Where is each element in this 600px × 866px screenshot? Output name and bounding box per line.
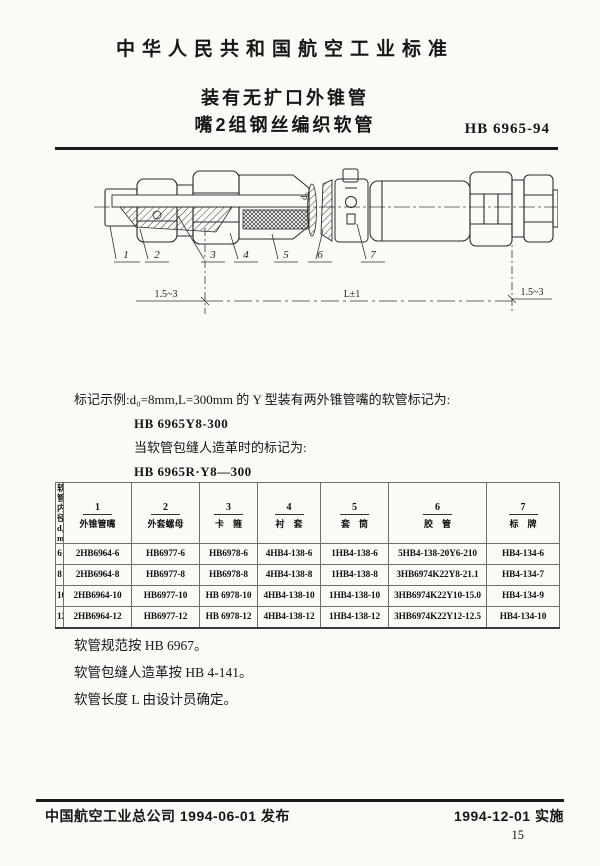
part-number-cell: HB4-134-7	[487, 565, 560, 586]
part-number-cell: 1HB4-138-6	[321, 544, 389, 565]
left-fitting-section-details	[112, 184, 317, 236]
marking-code-2: HB 6965R·Y8—300	[134, 460, 450, 484]
part-number-cell: 2HB6964-8	[64, 565, 132, 586]
table-row: 6 2HB6964-6 HB6977-6 HB6978-6 4HB4-138-6…	[56, 544, 560, 565]
part-number-cell: 4HB4-138-10	[258, 586, 321, 607]
notes-block: 软管规范按 HB 6967。 软管包缝人造革按 HB 4-141。 软管长度 L…	[74, 632, 253, 713]
standard-title: 中华人民共和国航空工业标准	[20, 34, 550, 61]
part-number-cell: 1HB4-138-10	[321, 586, 389, 607]
dimension-left-label: 1.5~3	[155, 289, 178, 300]
col-header-diameter: 软管 内径 d₀ mm	[56, 483, 64, 544]
col-header-sleeve: 5 套筒	[321, 483, 389, 544]
hose-assembly-drawing-svg: 1 2 3 4 5 6 7 1.5~3 L±1 1.5~3 d₀	[60, 166, 558, 322]
parts-table-header-row: 软管 内径 d₀ mm 1 外锥管嘴 2 外套螺母 3 卡箍	[56, 483, 560, 544]
part-number-cell: HB4-134-9	[487, 586, 560, 607]
part-number-cell: HB6977-10	[132, 586, 200, 607]
diameter-cell: 12	[56, 607, 64, 629]
right-fitting-outline	[370, 172, 558, 246]
col-header-nut: 2 外套螺母	[132, 483, 200, 544]
part-number-cell: 4HB4-138-12	[258, 607, 321, 629]
part-number-cell: HB 6978-12	[200, 607, 258, 629]
table-row: 10 2HB6964-10 HB6977-10 HB 6978-10 4HB4-…	[56, 586, 560, 607]
part-number-cell: 3HB6974K22Y12-12.5	[389, 607, 487, 629]
footer-implement-text: 1994-12-01 实施	[454, 806, 564, 826]
col-header-tag: 7 标牌	[487, 483, 560, 544]
marking-example-block: 标记示例:d₀=8mm,L=300mm 的 Y 型装有两外锥管嘴的软管标记为: …	[74, 388, 450, 484]
part-number-cell: 4HB4-138-8	[258, 565, 321, 586]
standard-code: HB 6965-94	[465, 121, 550, 138]
part-number-cell: 2HB6964-12	[64, 607, 132, 629]
part-label-7: 7	[370, 249, 376, 261]
part-number-cell: HB 6978-10	[200, 586, 258, 607]
note-hose-length: 软管长度 L 由设计员确定。	[74, 686, 253, 713]
part-number-cell: 1HB4-138-12	[321, 607, 389, 629]
part-label-4: 4	[243, 249, 249, 261]
col-header-nipple: 1 外锥管嘴	[64, 483, 132, 544]
diameter-cell: 6	[56, 544, 64, 565]
hose-break-and-tag-band	[321, 169, 368, 242]
parts-table: 软管 内径 d₀ mm 1 外锥管嘴 2 外套螺母 3 卡箍	[55, 482, 560, 629]
table-row: 8 2HB6964-8 HB6977-8 HB6978-8 4HB4-138-8…	[56, 565, 560, 586]
part-number-cell: HB4-134-10	[487, 607, 560, 629]
table-row: 12 2HB6964-12 HB6977-12 HB 6978-12 4HB4-…	[56, 607, 560, 629]
diameter-cell: 8	[56, 565, 64, 586]
part-number-cell: HB6977-6	[132, 544, 200, 565]
footer-rule	[36, 799, 564, 802]
marking-example-intro: 标记示例:d₀=8mm,L=300mm 的 Y 型装有两外锥管嘴的软管标记为:	[74, 388, 450, 412]
dimension-lines	[136, 228, 552, 314]
hose-assembly-technical-drawing: 1 2 3 4 5 6 7 1.5~3 L±1 1.5~3 d₀	[60, 166, 558, 322]
part-number-cell: 2HB6964-10	[64, 586, 132, 607]
part-label-5: 5	[283, 249, 289, 261]
page-number: 15	[512, 828, 525, 843]
standard-document-page: 中华人民共和国航空工业标准 装有无扩口外锥管 嘴2组钢丝编织软管 HB 6965…	[0, 0, 600, 866]
part-number-cell: HB6977-8	[132, 565, 200, 586]
part-number-cell: 3HB6974K22Y10-15.0	[389, 586, 487, 607]
part-label-1: 1	[123, 249, 129, 261]
part-number-cell: HB6978-8	[200, 565, 258, 586]
marking-leather-intro: 当软管包缝人造革时的标记为:	[134, 436, 450, 460]
part-number-cell: HB6977-12	[132, 607, 200, 629]
part-number-cell: 5HB4-138-20Y6-210	[389, 544, 487, 565]
part-number-cell: 4HB4-138-6	[258, 544, 321, 565]
part-number-cell: 3HB6974K22Y8-21.1	[389, 565, 487, 586]
col-header-bushing: 4 衬套	[258, 483, 321, 544]
part-number-cell: HB6978-6	[200, 544, 258, 565]
col-header-clamp: 3 卡箍	[200, 483, 258, 544]
col-header-hose: 6 胶管	[389, 483, 487, 544]
part-number-labels: 1 2 3 4 5 6 7	[123, 249, 376, 261]
footer-issue-text: 中国航空工业总公司 1994-06-01 发布	[45, 806, 290, 826]
part-number-cell: HB4-134-6	[487, 544, 560, 565]
part-number-cell: 2HB6964-6	[64, 544, 132, 565]
diameter-cell: 10	[56, 586, 64, 607]
part-label-2: 2	[154, 249, 160, 261]
part-label-6: 6	[317, 249, 323, 261]
note-leather-cover: 软管包缝人造革按 HB 4-141。	[74, 659, 253, 686]
header-rule	[55, 147, 558, 150]
part-number-cell: 1HB4-138-8	[321, 565, 389, 586]
hose-diameter-label: d₀	[299, 192, 309, 200]
dimension-right-label: 1.5~3	[521, 287, 544, 298]
marking-code-1: HB 6965Y8-300	[134, 412, 450, 436]
part-label-3: 3	[209, 249, 216, 261]
dimension-length-label: L±1	[344, 289, 361, 300]
note-hose-spec: 软管规范按 HB 6967。	[74, 632, 253, 659]
standard-subtitle-line1: 装有无扩口外锥管	[20, 84, 550, 110]
